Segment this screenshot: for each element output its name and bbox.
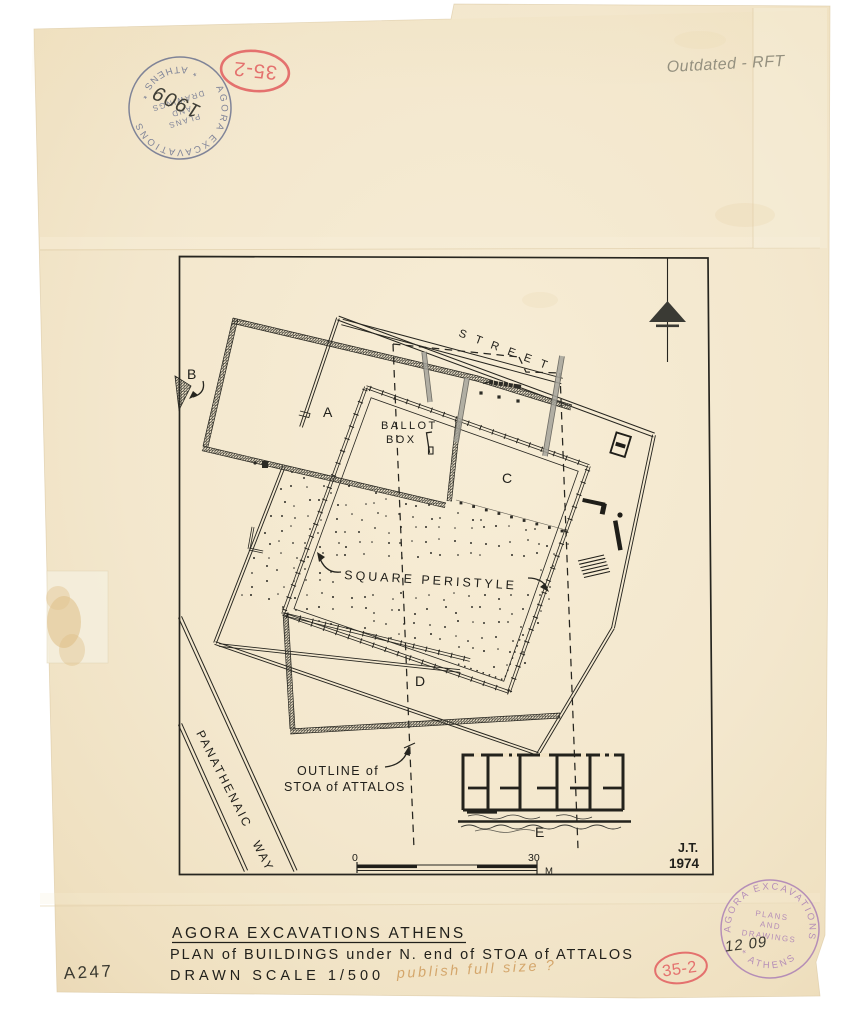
- svg-text:STOA of ATTALOS: STOA of ATTALOS: [284, 780, 405, 794]
- svg-text:C: C: [502, 470, 512, 486]
- svg-text:35-2: 35-2: [232, 57, 278, 83]
- svg-text:DRAWN SCALE 1/500: DRAWN SCALE 1/500: [170, 968, 384, 984]
- svg-text:OUTLINE of: OUTLINE of: [297, 764, 379, 778]
- svg-text:M: M: [545, 866, 553, 877]
- svg-text:PLAN of BUILDINGS under N. end: PLAN of BUILDINGS under N. end of STOA o…: [170, 947, 634, 963]
- svg-text:0: 0: [352, 852, 358, 864]
- svg-text:BOX: BOX: [386, 434, 416, 446]
- svg-text:B: B: [187, 366, 196, 382]
- svg-text:A: A: [323, 404, 333, 420]
- svg-text:1974: 1974: [669, 856, 700, 871]
- svg-text:E: E: [535, 824, 544, 840]
- svg-text:D: D: [415, 673, 425, 689]
- svg-text:A247: A247: [63, 961, 114, 983]
- svg-text:J.T.: J.T.: [678, 841, 698, 855]
- svg-text:AGORA EXCAVATIONS ATHENS: AGORA EXCAVATIONS ATHENS: [172, 925, 466, 942]
- svg-text:BALLOT: BALLOT: [381, 420, 438, 432]
- svg-text:30: 30: [528, 852, 540, 864]
